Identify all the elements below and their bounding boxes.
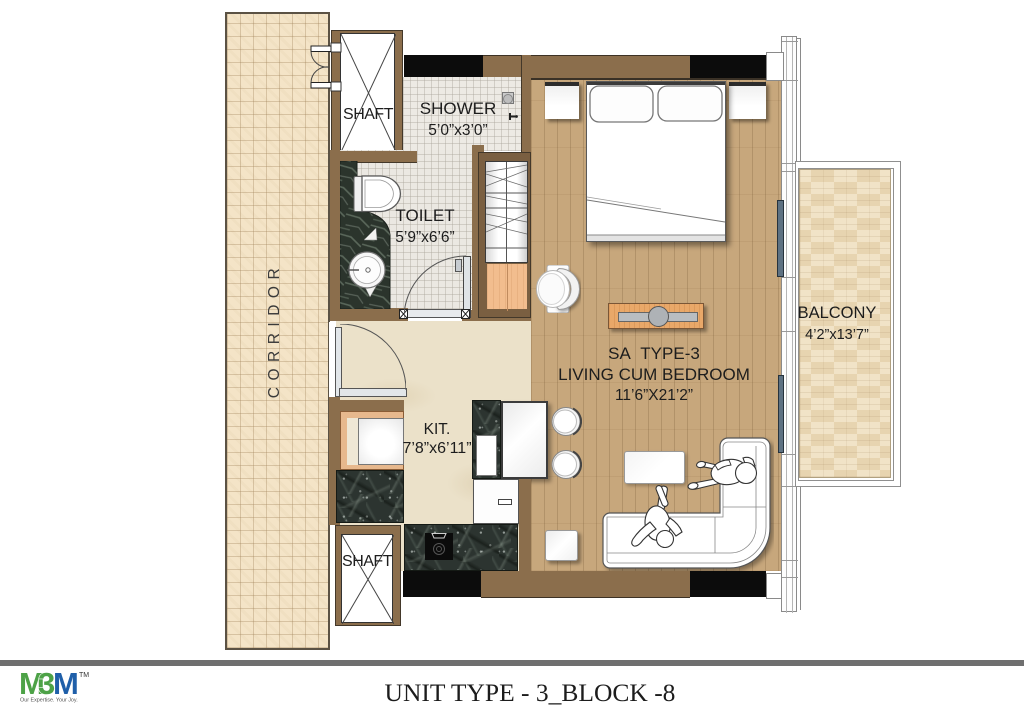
- svg-text:TM: TM: [79, 672, 89, 679]
- svg-text:M: M: [53, 667, 79, 701]
- svg-text:3: 3: [38, 667, 55, 701]
- svg-text:Our Expertise. Your Joy.: Our Expertise. Your Joy.: [20, 698, 78, 704]
